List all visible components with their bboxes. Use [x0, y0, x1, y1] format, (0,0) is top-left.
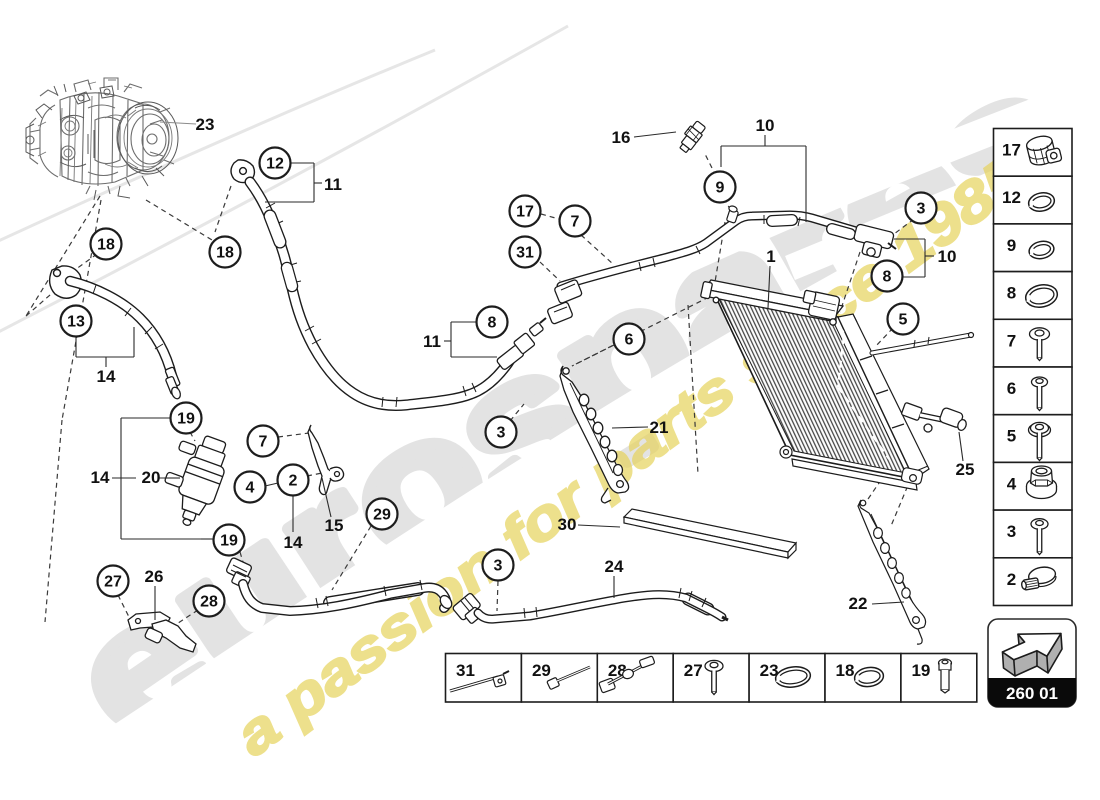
svg-text:9: 9 — [1007, 236, 1016, 255]
svg-text:26: 26 — [145, 567, 164, 586]
svg-text:7: 7 — [259, 434, 268, 451]
svg-text:14: 14 — [91, 468, 110, 487]
svg-text:14: 14 — [284, 533, 303, 552]
svg-text:28: 28 — [200, 594, 218, 611]
svg-text:27: 27 — [104, 574, 122, 591]
svg-text:10: 10 — [938, 247, 957, 266]
svg-text:13: 13 — [67, 314, 85, 331]
svg-text:20: 20 — [142, 468, 161, 487]
svg-text:8: 8 — [883, 269, 892, 286]
svg-text:24: 24 — [605, 557, 624, 576]
svg-text:2: 2 — [1007, 570, 1016, 589]
svg-text:11: 11 — [324, 175, 342, 194]
svg-text:11: 11 — [423, 332, 441, 351]
svg-text:19: 19 — [911, 661, 930, 680]
svg-text:18: 18 — [97, 237, 115, 254]
svg-text:18: 18 — [216, 245, 234, 262]
svg-text:17: 17 — [1002, 141, 1021, 160]
svg-text:31: 31 — [456, 661, 475, 680]
svg-text:16: 16 — [612, 128, 631, 147]
svg-text:30: 30 — [558, 515, 577, 534]
svg-text:9: 9 — [716, 180, 725, 197]
svg-text:21: 21 — [650, 418, 669, 437]
svg-text:22: 22 — [849, 594, 868, 613]
svg-text:3: 3 — [1007, 522, 1016, 541]
svg-text:12: 12 — [266, 156, 284, 173]
svg-text:7: 7 — [571, 214, 580, 231]
svg-text:3: 3 — [917, 201, 926, 218]
svg-text:6: 6 — [625, 332, 634, 349]
svg-text:19: 19 — [220, 533, 238, 550]
svg-text:29: 29 — [532, 661, 551, 680]
svg-text:10: 10 — [756, 116, 775, 135]
svg-text:3: 3 — [494, 558, 503, 575]
svg-text:27: 27 — [684, 661, 703, 680]
svg-text:4: 4 — [246, 480, 255, 497]
svg-text:29: 29 — [373, 507, 391, 524]
svg-text:4: 4 — [1007, 474, 1017, 493]
svg-text:5: 5 — [1007, 427, 1016, 446]
svg-text:7: 7 — [1007, 331, 1016, 350]
svg-text:1: 1 — [766, 247, 775, 266]
svg-text:18: 18 — [836, 661, 855, 680]
svg-text:260 01: 260 01 — [1006, 684, 1058, 703]
svg-text:6: 6 — [1007, 379, 1016, 398]
svg-text:5: 5 — [899, 312, 908, 329]
svg-text:3: 3 — [497, 425, 506, 442]
svg-text:23: 23 — [196, 115, 215, 134]
svg-text:15: 15 — [325, 516, 344, 535]
svg-text:12: 12 — [1002, 188, 1021, 207]
svg-text:8: 8 — [1007, 284, 1016, 303]
svg-text:2: 2 — [289, 473, 298, 490]
svg-text:8: 8 — [488, 315, 497, 332]
svg-text:14: 14 — [97, 367, 116, 386]
svg-text:25: 25 — [956, 460, 975, 479]
svg-text:17: 17 — [516, 204, 534, 221]
svg-text:19: 19 — [177, 411, 195, 428]
svg-text:31: 31 — [516, 245, 534, 262]
